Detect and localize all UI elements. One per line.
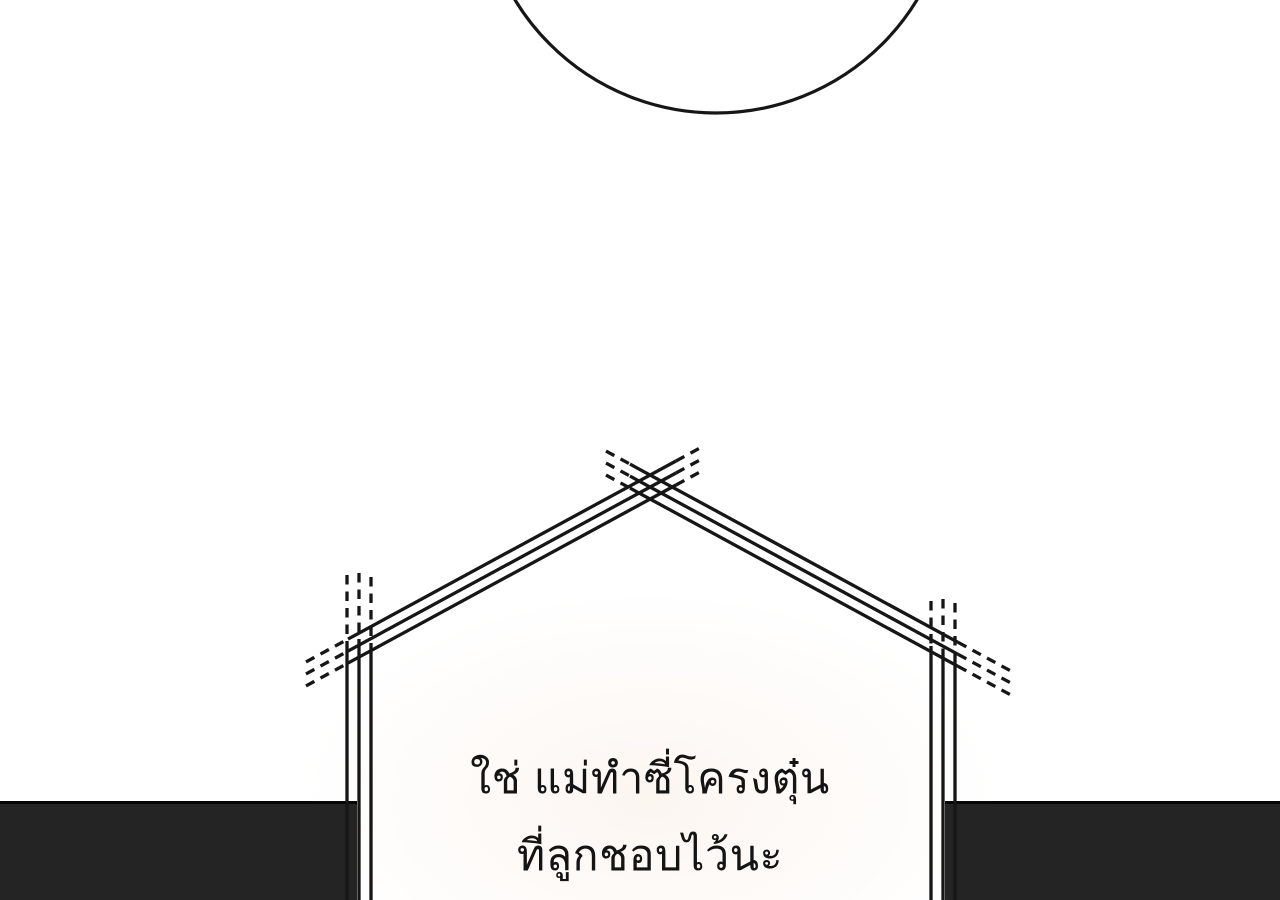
dialogue-line-2: ที่ลูกชอบไว้นะ (300, 818, 1000, 895)
comic-panel: ใช่ แม่ทำซี่โครงตุ๋น ที่ลูกชอบไว้นะ (0, 0, 1280, 900)
dialogue-line-1: ใช่ แม่ทำซี่โครงตุ๋น (300, 741, 1000, 818)
moon-arc (481, 0, 951, 113)
dialogue-text: ใช่ แม่ทำซี่โครงตุ๋น ที่ลูกชอบไว้นะ (300, 741, 1000, 894)
